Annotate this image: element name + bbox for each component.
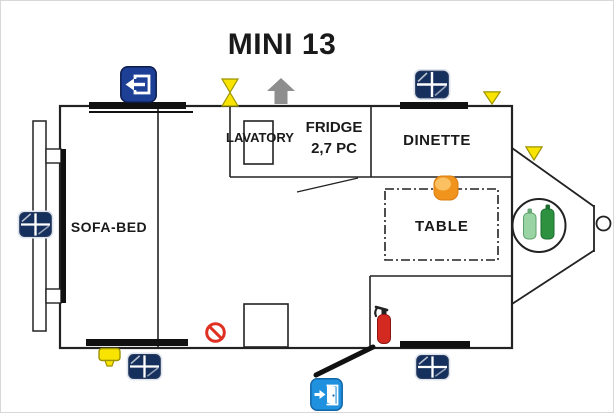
warning-triangle-icon-top — [483, 91, 501, 105]
room-label-sofa-bed: SOFA-BED — [61, 220, 157, 235]
corner-jack-icon — [97, 347, 123, 367]
door-swing-line — [297, 178, 358, 192]
rear-bumper-bracket-top — [46, 149, 61, 163]
fridge-label-line2: 2,7 PC — [296, 138, 372, 159]
window-icon-bottom-right — [414, 353, 451, 381]
heater-icon — [433, 175, 459, 201]
room-label-fridge: FRIDGE 2,7 PC — [296, 117, 372, 159]
window-icon-rear — [17, 210, 54, 239]
direction-arrow-icon — [267, 78, 295, 104]
entry-step — [244, 304, 288, 347]
hitch-lower-bar — [512, 251, 594, 305]
gas-bottles-icon — [510, 197, 568, 254]
window-bar-top-left — [89, 102, 186, 109]
room-label-dinette: DINETTE — [398, 133, 476, 150]
room-label-table: TABLE — [404, 219, 480, 236]
roof-vent-valve-icon — [221, 78, 239, 107]
window-bar-top-right — [400, 102, 468, 109]
entry-door-leaf — [316, 347, 373, 375]
window-icon-top — [413, 68, 451, 101]
fire-extinguisher-icon — [372, 303, 394, 345]
window-bar-bottom-right — [400, 341, 470, 348]
no-smoking-icon — [204, 321, 227, 344]
exit-door-icon — [120, 66, 157, 103]
window-icon-bottom-left — [126, 352, 163, 381]
floorplan-mini13: MINI 13 SOFA-BED LAVATORY FRIDGE 2,7 PC … — [0, 0, 614, 413]
window-bar-top-left-track — [89, 111, 193, 113]
warning-triangle-icon-side — [525, 146, 543, 161]
rear-bumper-bracket-bottom — [46, 289, 61, 303]
entry-door-icon — [310, 378, 343, 411]
window-bar-bottom-left — [86, 339, 188, 346]
fridge-label-line1: FRIDGE — [296, 117, 372, 138]
room-label-lavatory: LAVATORY — [222, 131, 298, 145]
hitch-coupler — [597, 217, 611, 231]
page-title: MINI 13 — [201, 28, 363, 61]
